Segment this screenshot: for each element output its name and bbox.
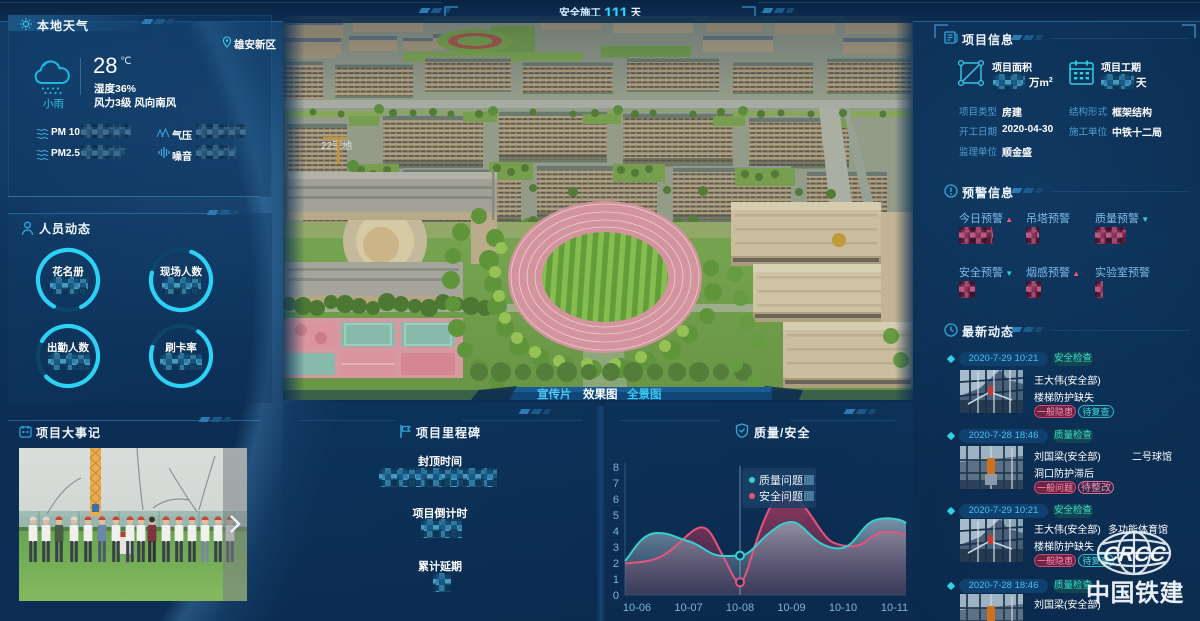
svg-text:4: 4 — [613, 526, 619, 538]
svg-text:效果图: 效果图 — [583, 387, 618, 400]
svg-text:2: 2 — [613, 558, 619, 570]
svg-text:10-06: 10-06 — [623, 602, 651, 614]
svg-text:0: 0 — [613, 590, 619, 602]
svg-text:10-11: 10-11 — [881, 602, 908, 614]
svg-text:8: 8 — [613, 462, 619, 474]
svg-text:6: 6 — [613, 494, 619, 506]
svg-text:5: 5 — [613, 510, 619, 522]
svg-text:1: 1 — [613, 574, 619, 586]
svg-text:10-09: 10-09 — [777, 602, 805, 614]
svg-text:中国铁建: 中国铁建 — [1086, 580, 1184, 607]
svg-text:质量问题: 质量问题 — [759, 474, 803, 487]
svg-text:10-10: 10-10 — [829, 602, 857, 614]
svg-text:10-08: 10-08 — [726, 602, 754, 614]
svg-text:3: 3 — [613, 542, 619, 554]
svg-text:全景图: 全景图 — [626, 387, 662, 400]
svg-text:7: 7 — [613, 478, 619, 490]
svg-text:CRCC: CRCC — [1100, 542, 1169, 566]
svg-text:10-07: 10-07 — [674, 602, 702, 614]
svg-text:宣传片: 宣传片 — [537, 387, 572, 400]
svg-text:安全问题: 安全问题 — [759, 489, 803, 503]
